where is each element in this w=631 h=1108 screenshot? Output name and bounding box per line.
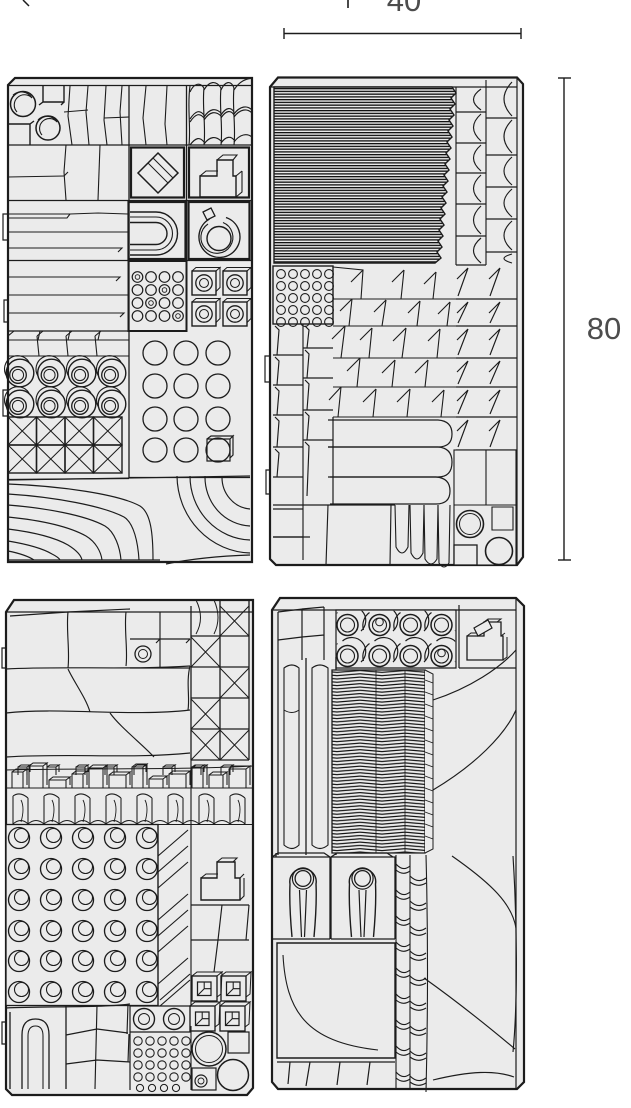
svg-text:80: 80 xyxy=(587,311,621,346)
svg-text:40: 40 xyxy=(387,0,421,18)
